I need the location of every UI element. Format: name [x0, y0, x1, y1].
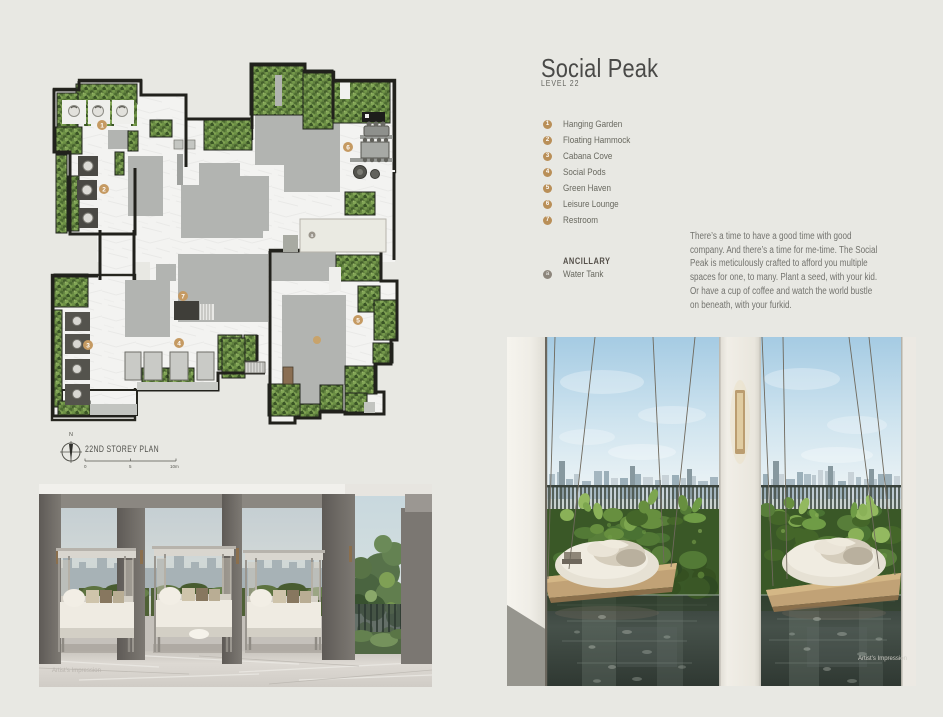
svg-text:0: 0 [84, 464, 87, 469]
svg-text:2: 2 [102, 187, 106, 194]
svg-text:3: 3 [86, 343, 90, 350]
svg-text:5: 5 [356, 318, 360, 325]
svg-text:6: 6 [346, 145, 350, 152]
svg-text:10m: 10m [170, 464, 179, 469]
svg-text:7: 7 [181, 294, 185, 301]
svg-text:a: a [311, 233, 314, 239]
svg-text:5: 5 [129, 464, 132, 469]
svg-text:4: 4 [177, 341, 181, 348]
svg-text:N: N [69, 432, 73, 438]
svg-text:1: 1 [100, 123, 104, 130]
svg-text:22ND STOREY PLAN: 22ND STOREY PLAN [85, 444, 159, 454]
